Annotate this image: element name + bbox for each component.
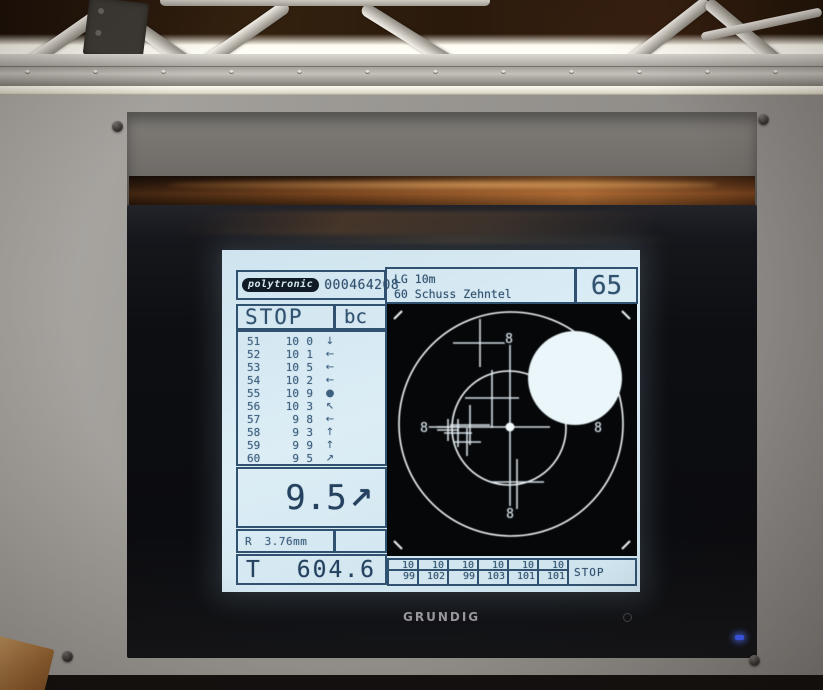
shot-number: 58: [247, 426, 271, 439]
series-column: 1099: [449, 560, 479, 584]
range-photo: polytronic 000464208 LG 10m 60 Schuss Ze…: [0, 0, 823, 690]
rivet: [365, 70, 370, 74]
shot-number: 54: [247, 374, 271, 387]
screw: [758, 114, 769, 125]
shot-score: 9: [271, 426, 299, 439]
current-shot-direction-icon: ↗: [349, 481, 373, 515]
series-column: 10103: [479, 560, 509, 584]
corner-tick: [394, 311, 402, 319]
truss-chord: [160, 0, 490, 6]
target-graphic: 8888: [387, 304, 637, 556]
shot-number: 60: [247, 452, 271, 465]
shot-number: 51: [247, 335, 271, 348]
shot-number: 55: [247, 387, 271, 400]
status-bc: bc: [334, 304, 387, 330]
shot-tenth: 5: [299, 361, 313, 374]
empty-cell: [334, 529, 387, 553]
lcd-screen: polytronic 000464208 LG 10m 60 Schuss Ze…: [222, 250, 640, 592]
series-total: 101: [539, 571, 567, 582]
shot-row: 5999↑: [238, 439, 385, 452]
total-score-cell: T 604.6: [236, 554, 387, 585]
series-total: 102: [419, 571, 447, 582]
shot-score: 10: [271, 374, 299, 387]
glass-reflection: [244, 235, 679, 244]
bottom-shadow: [0, 675, 823, 690]
series-table: 1099101021099101031010110101STOP: [387, 558, 637, 586]
screw: [112, 121, 123, 132]
shot-row: 52101←: [238, 348, 385, 361]
discipline-label: LG 10m: [394, 272, 574, 287]
total-value: 604.6: [297, 557, 376, 583]
shot-direction-icon: ↑: [319, 439, 341, 452]
series-column: 10101: [539, 560, 569, 584]
beam: [0, 54, 823, 88]
series-shots: 10: [539, 560, 567, 571]
series-column: 10102: [419, 560, 449, 584]
screw: [62, 651, 73, 662]
shot-tenth: 3: [299, 400, 313, 413]
corner-tick: [622, 541, 630, 549]
shot-tenth: 1: [299, 348, 313, 361]
series-stop-label: STOP: [569, 560, 635, 584]
ring-label: 8: [420, 421, 428, 436]
shot-score: 9: [271, 413, 299, 426]
rivet: [569, 70, 574, 74]
shot-row: 53105←: [238, 361, 385, 374]
series-shots: 10: [479, 560, 507, 571]
shot-score: 10: [271, 335, 299, 348]
series-column: 1099: [389, 560, 419, 584]
grundig-logo: GRUNDIG: [403, 610, 480, 624]
shot-score: 10: [271, 348, 299, 361]
glass-reflection: [179, 211, 716, 235]
rivet: [433, 70, 438, 74]
match-format-label: 60 Schuss Zehntel: [394, 287, 574, 302]
shot-direction-icon: ↑: [319, 426, 341, 439]
series-total: 99: [389, 571, 417, 582]
shot-row: 5798←: [238, 413, 385, 426]
shot-tenth: 9: [299, 387, 313, 400]
shot-direction-icon: ●: [319, 387, 341, 400]
monitor: polytronic 000464208 LG 10m 60 Schuss Ze…: [127, 205, 757, 658]
target-display: 8888: [387, 304, 637, 556]
shot-tenth: 5: [299, 452, 313, 465]
shot-score: 9: [271, 452, 299, 465]
shot-direction-icon: ←: [319, 348, 341, 361]
rivet: [705, 70, 710, 74]
series-shots: 10: [509, 560, 537, 571]
rivet: [637, 70, 642, 74]
shot-tenth: 0: [299, 335, 313, 348]
current-shot-value: 9.5: [285, 478, 346, 518]
shot-hole-disc: [528, 331, 622, 425]
match-title-cell: LG 10m 60 Schuss Zehntel: [385, 267, 576, 304]
shot-list: 51100↓52101←53105←54102←55109●56103↖5798…: [236, 330, 387, 466]
beam-seam: [0, 66, 823, 67]
series-shots: 10: [449, 560, 477, 571]
series-shots: 10: [419, 560, 447, 571]
rivet: [25, 70, 30, 74]
rivet: [501, 70, 506, 74]
shot-row: 5893↑: [238, 426, 385, 439]
shot-direction-icon: ↓: [319, 335, 341, 348]
ring-label: 8: [505, 332, 513, 347]
ring-label: 8: [594, 421, 602, 436]
rivet: [773, 70, 778, 74]
corner-tick: [622, 311, 630, 319]
shot-score: 10: [271, 400, 299, 413]
shot-number: 59: [247, 439, 271, 452]
power-icon: [623, 613, 632, 622]
current-shot-cell: 9.5 ↗: [236, 467, 387, 528]
shot-number: 57: [247, 413, 271, 426]
series-total: 99: [449, 571, 477, 582]
polytronic-logo: polytronic: [242, 278, 319, 292]
shot-direction-icon: ←: [319, 374, 341, 387]
shot-number: 56: [247, 400, 271, 413]
series-shots: 10: [389, 560, 417, 571]
shot-number: 52: [247, 348, 271, 361]
shot-tenth: 9: [299, 439, 313, 452]
shot-tenth: 2: [299, 374, 313, 387]
shot-score: 9: [271, 439, 299, 452]
shot-row: 6095↗: [238, 452, 385, 465]
screw: [749, 655, 760, 666]
header-logo-cell: polytronic 000464208: [236, 270, 386, 300]
rivet: [297, 70, 302, 74]
shot-row: 55109●: [238, 387, 385, 400]
center-dot: [506, 423, 515, 432]
series-total: 103: [479, 571, 507, 582]
status-stop: STOP: [236, 304, 335, 330]
ring-label: 8: [506, 507, 514, 522]
shot-score: 10: [271, 361, 299, 374]
shot-direction-icon: ↗: [319, 452, 341, 465]
lane-number: 65: [575, 267, 638, 304]
truss-bracket: [83, 0, 150, 61]
mean-radius-cell: R 3.76mm: [236, 529, 335, 553]
shot-row: 56103↖: [238, 400, 385, 413]
shot-direction-icon: ←: [319, 361, 341, 374]
rivet: [229, 70, 234, 74]
rivet: [93, 70, 98, 74]
rivet: [161, 70, 166, 74]
shot-tenth: 3: [299, 426, 313, 439]
shot-number: 53: [247, 361, 271, 374]
shot-direction-icon: ←: [319, 413, 341, 426]
radius-value: 3.76mm: [265, 535, 308, 548]
shot-row: 51100↓: [238, 335, 385, 348]
shot-tenth: 8: [299, 413, 313, 426]
corner-tick: [394, 541, 402, 549]
series-total: 101: [509, 571, 537, 582]
total-label: T: [246, 557, 260, 583]
shot-row: 54102←: [238, 374, 385, 387]
radius-label: R: [245, 535, 252, 548]
series-column: 10101: [509, 560, 539, 584]
shot-direction-icon: ↖: [319, 400, 341, 413]
power-led: [735, 635, 744, 640]
shot-score: 10: [271, 387, 299, 400]
wood-strip: [129, 176, 755, 206]
